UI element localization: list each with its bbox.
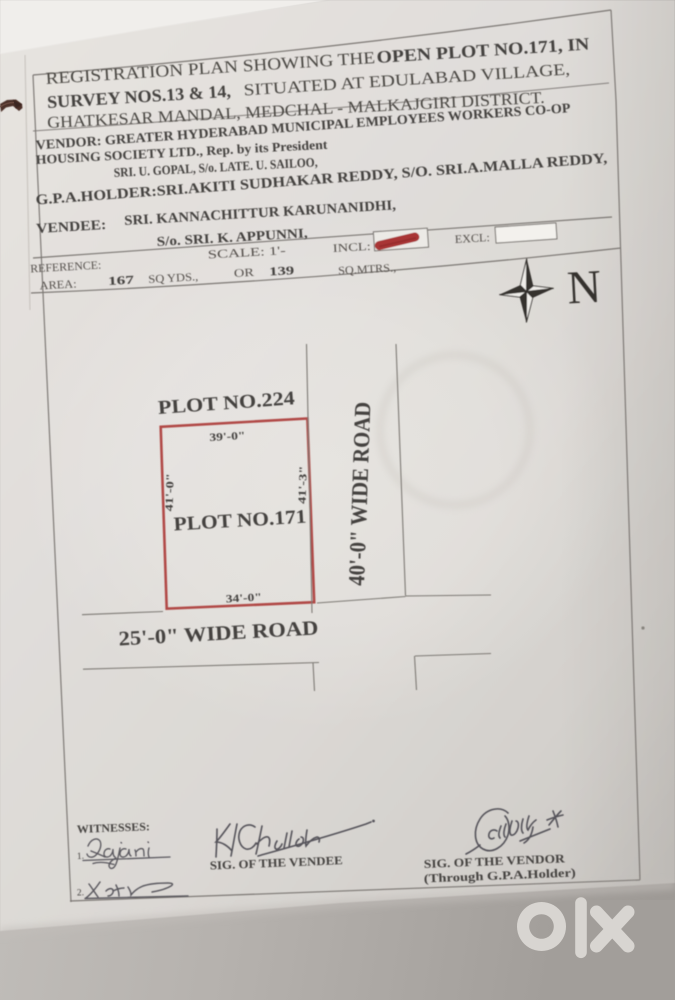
svg-text:39'-0": 39'-0" — [209, 430, 246, 444]
svg-text:41'-3": 41'-3" — [297, 466, 310, 504]
svg-text:OR: OR — [234, 267, 255, 280]
svg-text:AREA:: AREA: — [39, 278, 77, 292]
svg-text:2.: 2. — [77, 888, 85, 898]
svg-text:N: N — [566, 261, 603, 315]
svg-text:EXCL:: EXCL: — [454, 232, 490, 246]
svg-text:INCL:: INCL: — [332, 241, 371, 255]
svg-text:41'-0": 41'-0" — [164, 473, 177, 511]
svg-text:139: 139 — [269, 263, 295, 278]
svg-text:167: 167 — [108, 273, 135, 288]
svg-text:34'-0": 34'-0" — [225, 591, 262, 605]
